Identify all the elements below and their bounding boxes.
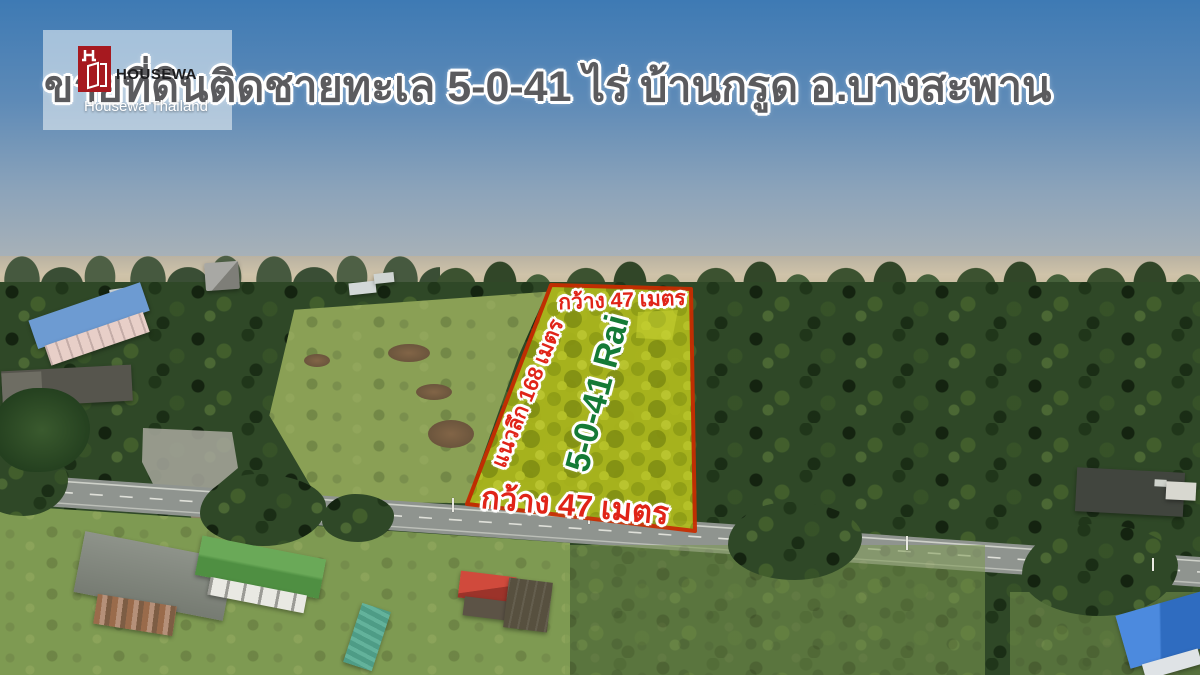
- land-listing-photo: กว้าง 47 เมตร แนวลึก 168 เมตร 5-0-41 Rai…: [0, 0, 1200, 675]
- logo-subtitle-text: Housewa Thailand: [84, 98, 208, 115]
- listing-title: ขายที่ดินติดชายทะเล 5-0-41 ไร่ บ้านกรูด …: [44, 52, 1200, 120]
- logo-brand-text: HOUSEWA: [116, 66, 197, 83]
- housewa-logo-icon: [78, 46, 111, 92]
